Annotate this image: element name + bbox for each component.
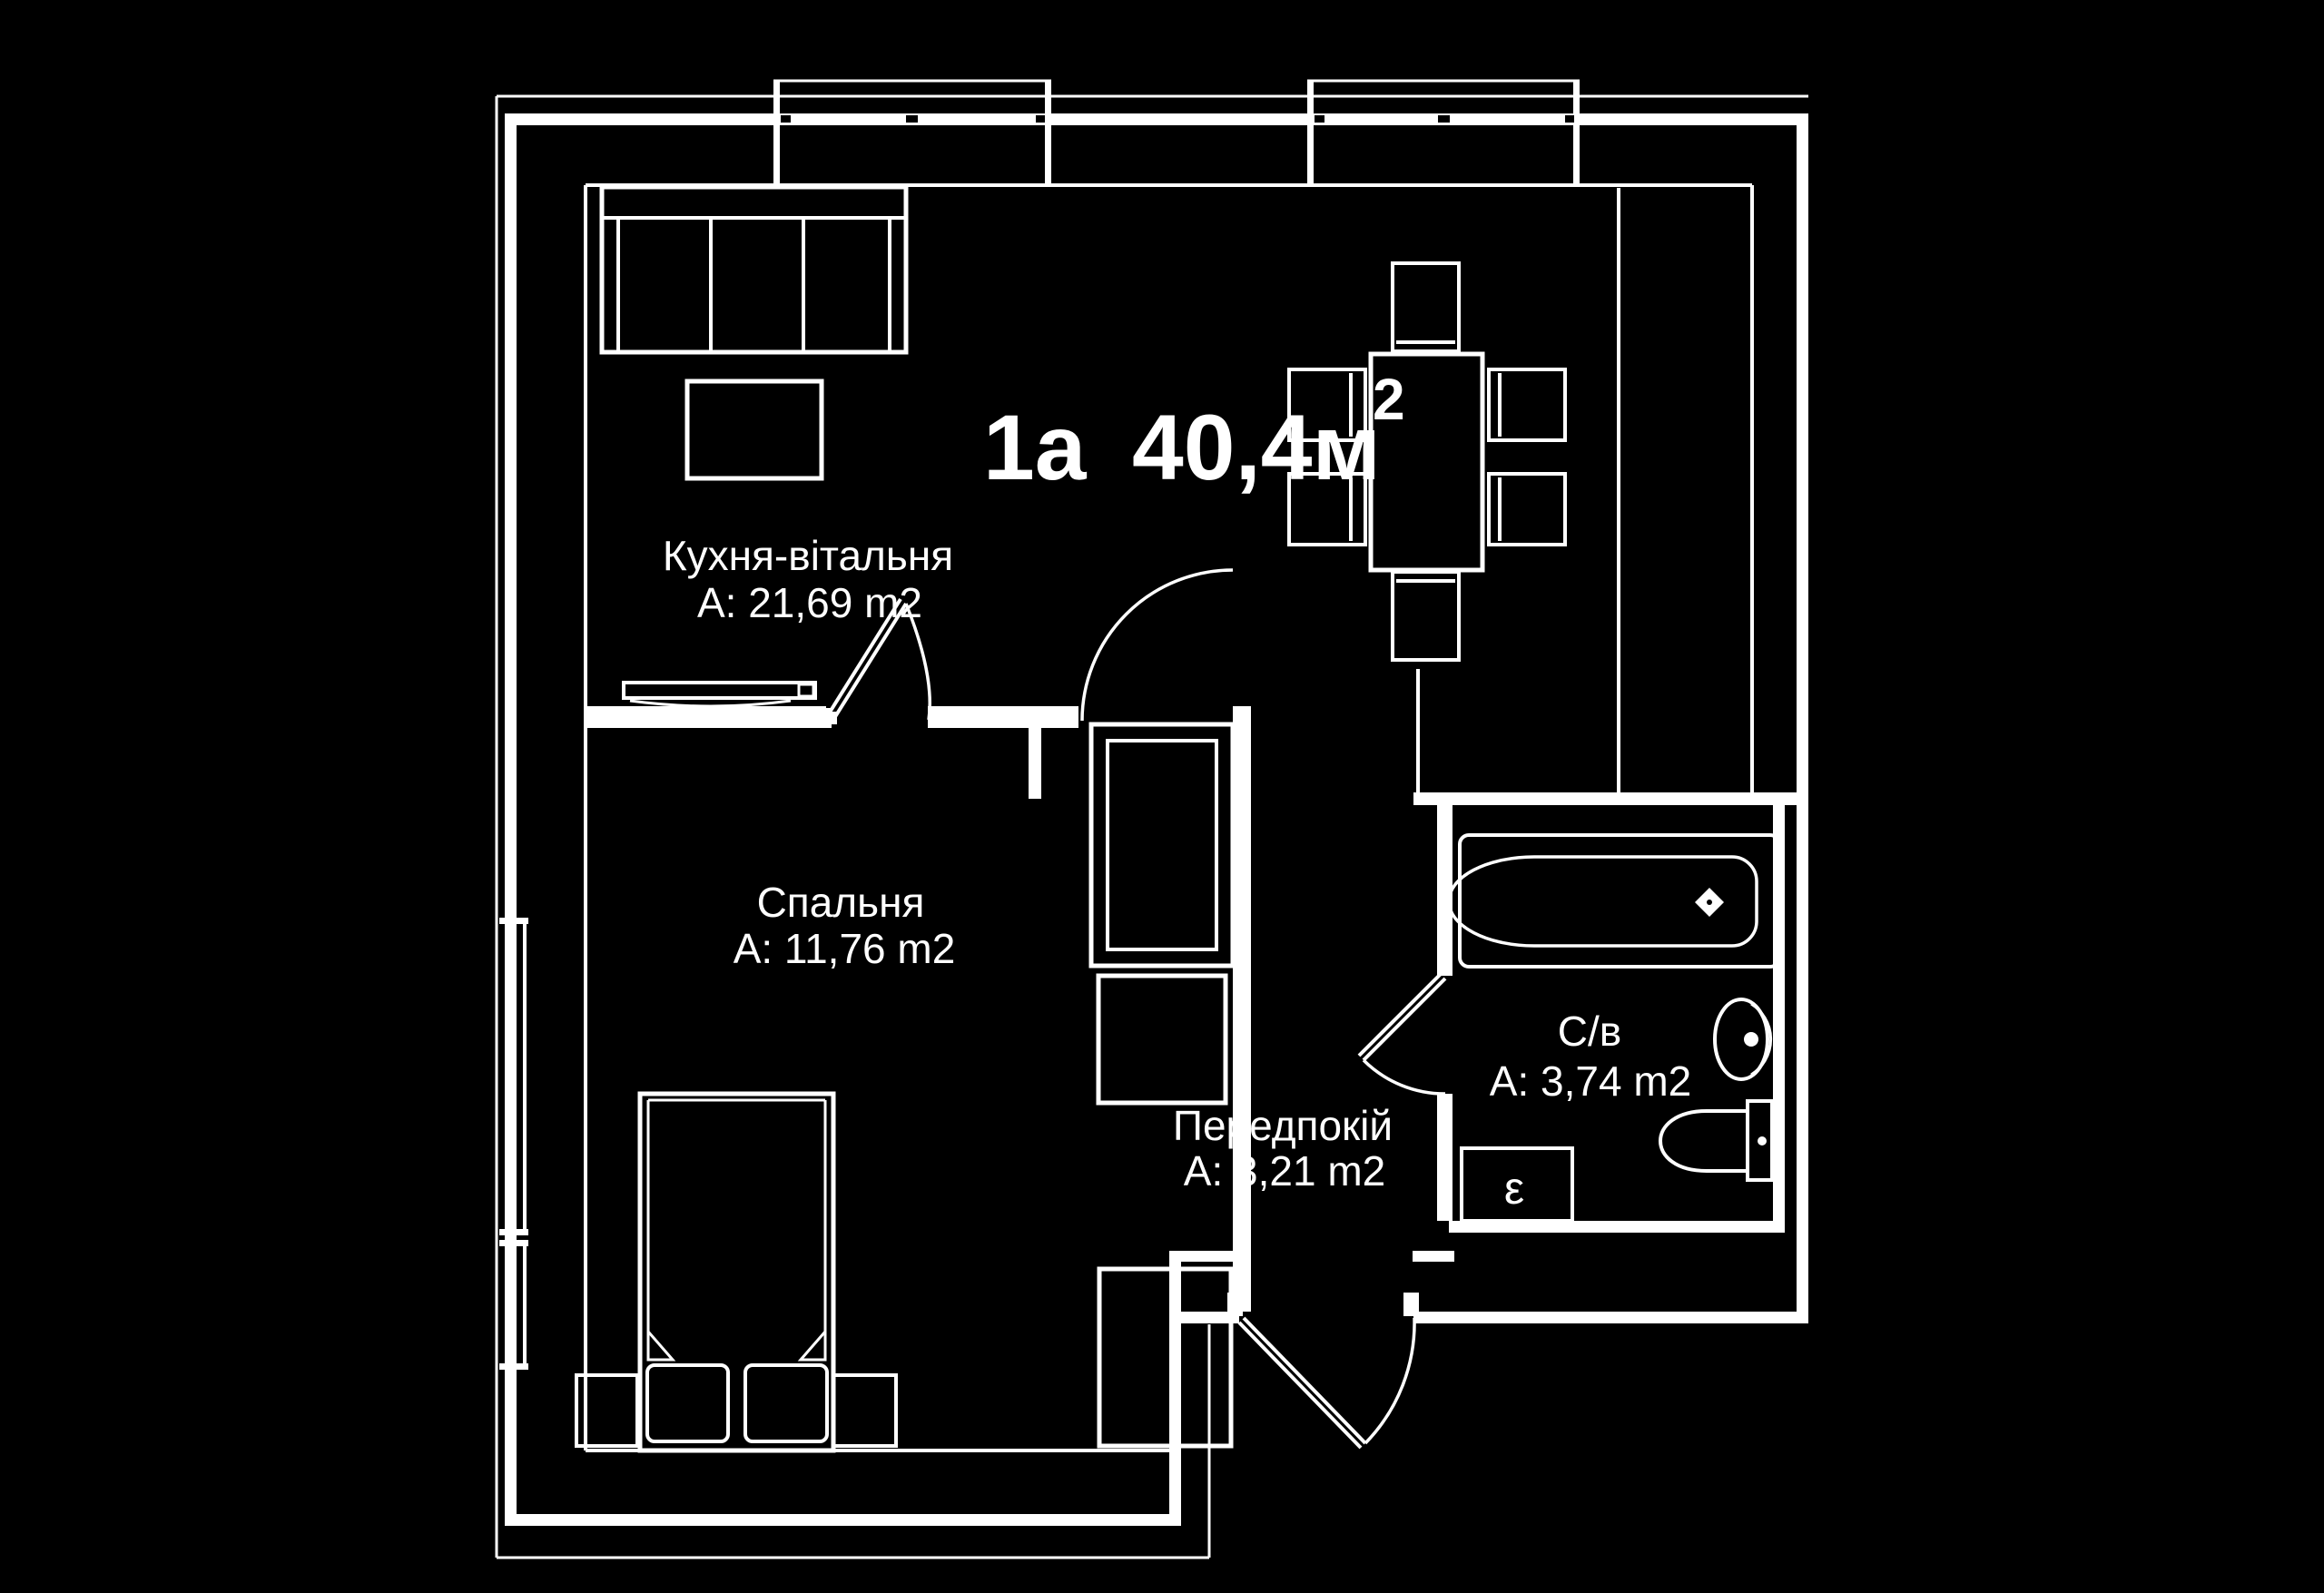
kitchen-living-area: A: 21,69 m2 bbox=[697, 579, 922, 626]
bathroom-wall-top bbox=[1413, 792, 1797, 805]
hallway-name: Передпокій bbox=[1173, 1102, 1393, 1149]
total-area-label: 40,4м bbox=[1132, 396, 1381, 499]
wall-step-connector bbox=[1169, 1262, 1181, 1526]
room-hallway bbox=[1251, 805, 1437, 1312]
partition-bedroom-hallway bbox=[1233, 706, 1251, 1312]
floor-plan-canvas: ε 1a 40,4м 2 Кухня-вітальня A: 21,69 m2 … bbox=[0, 0, 2324, 1593]
kitchen-living-name: Кухня-вітальня bbox=[663, 532, 953, 579]
room-bedroom bbox=[586, 728, 1233, 1450]
bedroom-name: Спальня bbox=[757, 879, 925, 926]
hall-bottom-wall-right bbox=[1413, 1251, 1454, 1262]
wall-bottom-bedroom bbox=[505, 1514, 1181, 1526]
wall-left bbox=[505, 113, 517, 1526]
bedroom-area: A: 11,76 m2 bbox=[734, 925, 956, 972]
wall-bottom-entry-right bbox=[1413, 1312, 1808, 1323]
door-entrance bbox=[1227, 1293, 1419, 1448]
total-area-superscript: 2 bbox=[1373, 367, 1405, 432]
partition-kitchen-bedroom-b bbox=[928, 706, 1078, 728]
hallway-area: A: 3,21 m2 bbox=[1184, 1147, 1385, 1195]
bathroom-area: A: 3,74 m2 bbox=[1490, 1057, 1691, 1105]
unit-label: 1a bbox=[983, 396, 1088, 499]
duct-label: ε bbox=[1504, 1163, 1524, 1214]
partition-kitchen-bedroom-a bbox=[586, 706, 826, 728]
bathroom-name: С/в bbox=[1558, 1008, 1621, 1055]
bathroom-wall-left-lower bbox=[1437, 1094, 1452, 1221]
wall-top bbox=[505, 113, 1808, 125]
wall-right bbox=[1797, 113, 1808, 1323]
hall-bottom-wall-left bbox=[1169, 1251, 1242, 1262]
partition-stub bbox=[1029, 728, 1041, 799]
